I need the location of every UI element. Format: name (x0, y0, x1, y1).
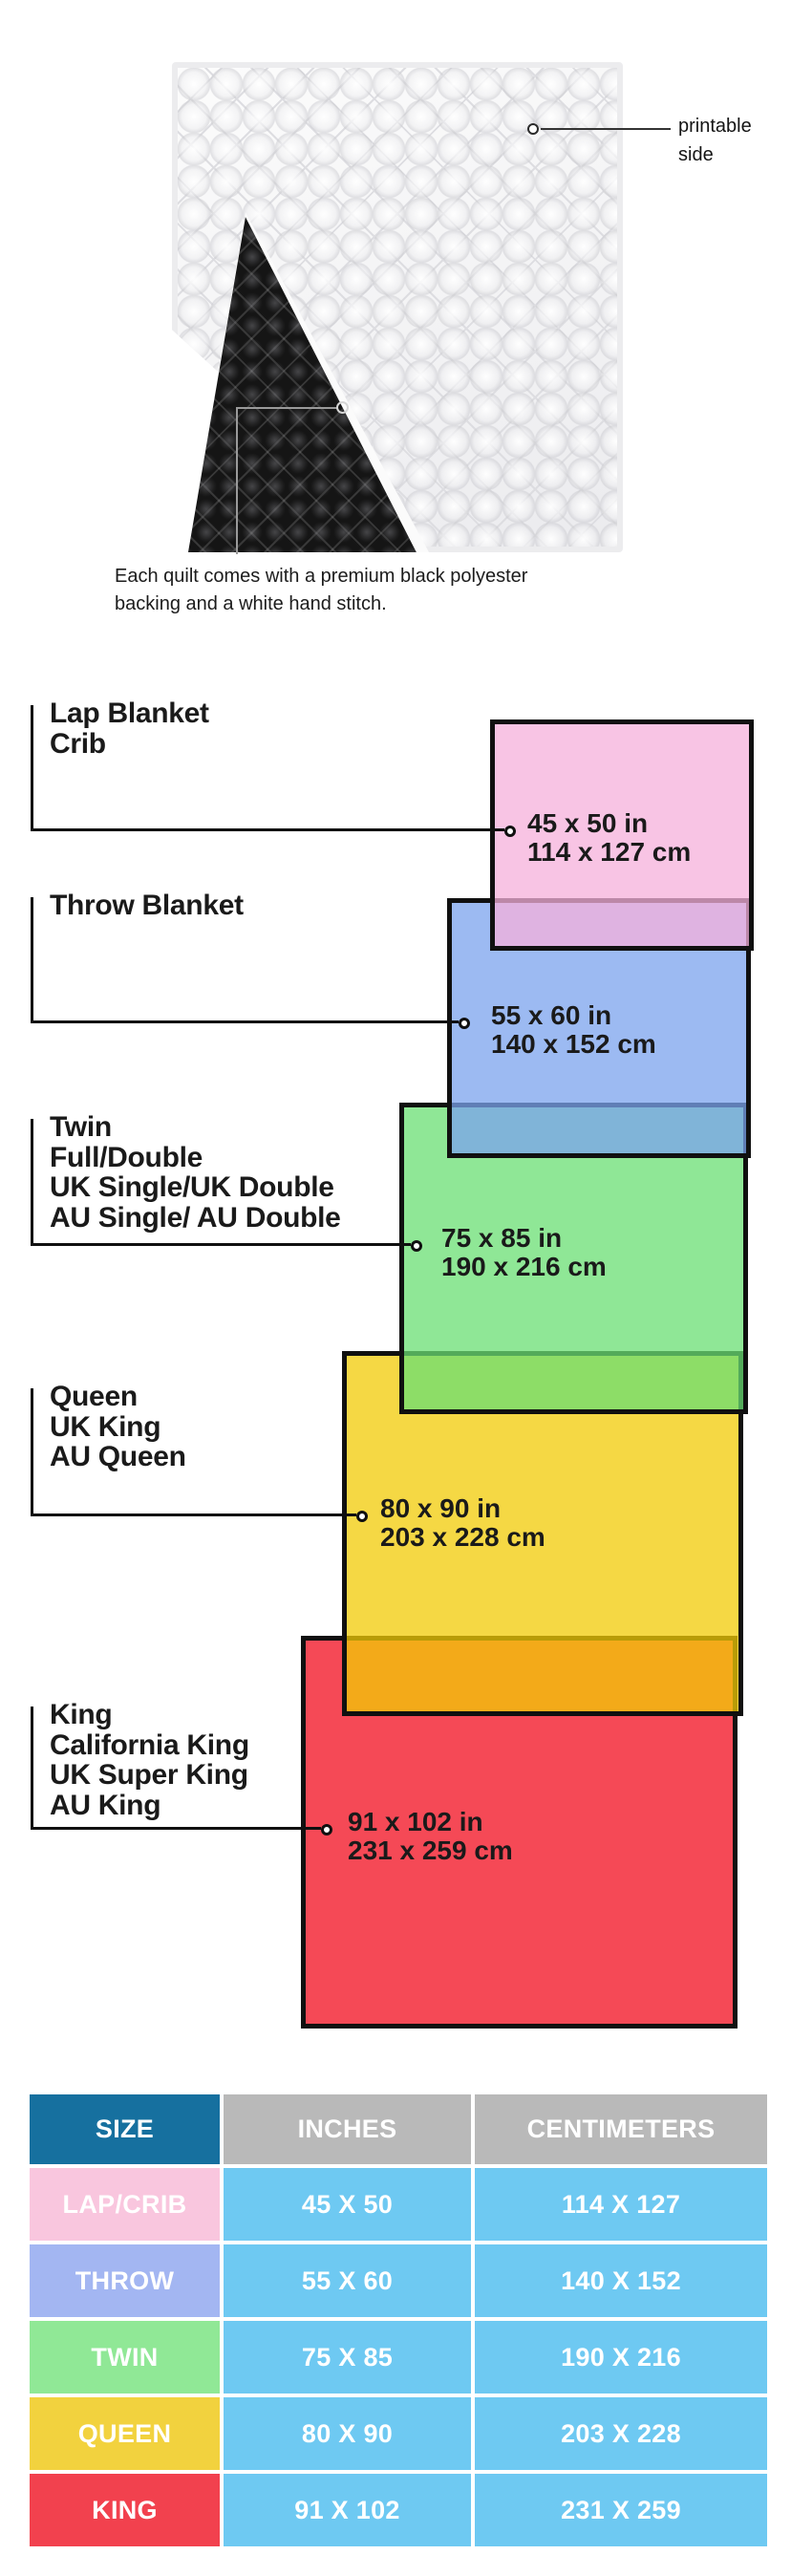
table-cell-inches: 45 X 50 (224, 2168, 471, 2241)
size-guide-page: printable side Each quilt comes with a p… (0, 0, 791, 2576)
measurement-king: 91 x 102 in 231 x 259 cm (348, 1808, 513, 1865)
measurement-inches: 45 x 50 in (527, 809, 691, 838)
printable-callout-line (541, 128, 671, 130)
table-cell-centimeters: 140 X 152 (475, 2244, 767, 2317)
table-row-label-queen: QUEEN (30, 2397, 220, 2470)
table-cell-centimeters: 231 X 259 (475, 2474, 767, 2546)
measurement-queen: 80 x 90 in 203 x 228 cm (380, 1494, 545, 1552)
callout-dot-icon (459, 1018, 470, 1029)
printable-callout-dot-icon (527, 123, 539, 135)
measurement-centimeters: 231 x 259 cm (348, 1836, 513, 1865)
table-cell-inches: 80 X 90 (224, 2397, 471, 2470)
measurement-inches: 91 x 102 in (348, 1808, 513, 1836)
table-cell-centimeters: 114 X 127 (475, 2168, 767, 2241)
table-header-centimeters: CENTIMETERS (475, 2094, 767, 2164)
measurement-centimeters: 114 x 127 cm (527, 838, 691, 867)
table-row-label-king: KING (30, 2474, 220, 2546)
measurement-inches: 80 x 90 in (380, 1494, 545, 1523)
measurement-centimeters: 140 x 152 cm (491, 1030, 656, 1059)
table-row-label-lap-crib: LAP/CRIB (30, 2168, 220, 2241)
callout-connector-king (31, 1707, 321, 1830)
printable-side-label: printable side (678, 112, 752, 169)
backing-callout-dot-icon (336, 401, 349, 414)
measurement-centimeters: 190 x 216 cm (441, 1253, 607, 1281)
callout-dot-icon (356, 1511, 368, 1522)
callout-dot-icon (411, 1240, 422, 1252)
photo-caption: Each quilt comes with a premium black po… (115, 563, 527, 618)
measurement-lap-crib: 45 x 50 in 114 x 127 cm (527, 809, 691, 867)
printable-side-label-line: printable (678, 112, 752, 140)
measurement-centimeters: 203 x 228 cm (380, 1523, 545, 1552)
printable-side-label-line: side (678, 140, 752, 169)
measurement-inches: 75 x 85 in (441, 1224, 607, 1253)
callout-connector-twin (31, 1119, 411, 1246)
callout-connector-queen (31, 1388, 356, 1516)
size-table: SIZE INCHES CENTIMETERS LAP/CRIB 45 X 50… (30, 2094, 767, 2546)
callout-connector-lap-crib (31, 705, 504, 831)
table-cell-inches: 75 X 85 (224, 2321, 471, 2394)
table-row-label-twin: TWIN (30, 2321, 220, 2394)
photo-caption-line: backing and a white hand stitch. (115, 590, 527, 618)
table-header-inches: INCHES (224, 2094, 471, 2164)
table-header-size: SIZE (30, 2094, 220, 2164)
callout-dot-icon (321, 1824, 332, 1835)
callout-connector-throw (31, 897, 459, 1023)
table-cell-centimeters: 190 X 216 (475, 2321, 767, 2394)
table-row-label-throw: THROW (30, 2244, 220, 2317)
photo-caption-line: Each quilt comes with a premium black po… (115, 563, 527, 590)
table-cell-inches: 55 X 60 (224, 2244, 471, 2317)
measurement-twin: 75 x 85 in 190 x 216 cm (441, 1224, 607, 1281)
callout-dot-icon (504, 826, 516, 837)
table-cell-inches: 91 X 102 (224, 2474, 471, 2546)
measurement-inches: 55 x 60 in (491, 1001, 656, 1030)
measurement-throw: 55 x 60 in 140 x 152 cm (491, 1001, 656, 1059)
backing-callout-line (236, 407, 338, 554)
table-cell-centimeters: 203 X 228 (475, 2397, 767, 2470)
